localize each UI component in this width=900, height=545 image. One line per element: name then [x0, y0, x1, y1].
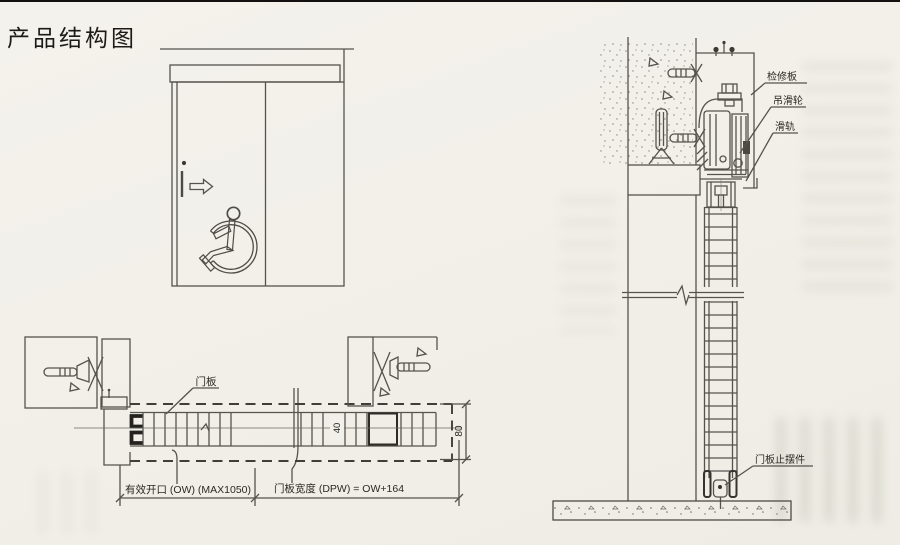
housing-pin	[722, 41, 725, 44]
door-section-view: 检修板 吊滑轮 滑轨 门板止摆件	[553, 37, 813, 520]
wall-anchor-bolt-right	[374, 348, 430, 396]
door-elevation-view	[160, 49, 354, 286]
housing-bolt	[713, 47, 718, 52]
opening-dimension-label: 有效开口 (OW) (MAX1050)	[125, 483, 251, 496]
section-callouts: 检修板 吊滑轮 滑轨 门板止摆件	[725, 70, 813, 485]
wall-post-right	[348, 337, 373, 406]
callout-leader-line	[725, 466, 813, 485]
aggregate-triangle	[70, 383, 79, 391]
callout-leader-line	[751, 83, 807, 95]
wheelchair-head	[227, 207, 239, 219]
lock-dot	[182, 161, 186, 165]
door-panel-callout: 门板	[166, 375, 219, 414]
wall-section-left	[25, 337, 97, 408]
hatch-marks	[697, 146, 708, 170]
centerline-break-mark	[201, 424, 209, 431]
section-break-line	[622, 286, 744, 304]
door-panel-label: 门板	[196, 375, 217, 388]
scanned-drawing-page: 产品结构图	[0, 0, 900, 545]
hanger-bolt-bracket	[707, 178, 735, 211]
hanger-roller-assembly	[697, 84, 750, 179]
pocket-stile-lines	[294, 388, 298, 448]
door-panel-section	[705, 207, 738, 478]
frame-channel	[104, 409, 130, 465]
panel-width-dimension-label: 门板宽度 (DPW) = OW+164	[274, 482, 404, 495]
rail-width-dim-text: 40	[332, 423, 343, 434]
hanger-roller-label: 吊滑轮	[773, 94, 803, 107]
access-panel-label: 检修板	[767, 70, 797, 83]
housing-bolt	[729, 47, 734, 52]
technical-drawing: 门板 40 有效开口 (OW) (MAX1050) 门板宽度 (DPW) = O…	[0, 0, 900, 545]
wheelchair-accessible-icon	[200, 207, 257, 273]
jamb-screw-head	[108, 389, 111, 392]
thickness-dimension: 80	[440, 400, 471, 464]
extension-hook	[292, 446, 298, 483]
width-dimensions: 有效开口 (OW) (MAX1050) 门板宽度 (DPW) = OW+164	[116, 440, 463, 506]
rail-width-dimension: 40	[330, 416, 344, 440]
lock-stile-section	[369, 414, 397, 445]
guide-pin-head	[718, 485, 722, 489]
door-plan-view: 门板 40 有效开口 (OW) (MAX1050) 门板宽度 (DPW) = O…	[25, 337, 471, 506]
concrete-wall-hatch	[599, 40, 693, 164]
floor-slab	[553, 501, 791, 520]
thickness-dim-text: 80	[454, 425, 465, 437]
door-panel-plan	[130, 413, 436, 447]
guide-channel	[704, 471, 711, 497]
extension-hook	[172, 450, 177, 484]
floor-guide-label: 门板止摆件	[755, 453, 805, 466]
lintel-beam-box	[628, 165, 700, 195]
extension-lines	[120, 440, 459, 506]
header-cover-box	[170, 65, 340, 82]
break-zigzag	[677, 286, 689, 304]
slide-direction-arrow-icon	[190, 180, 213, 194]
rail-label: 滑轨	[775, 120, 795, 133]
callout-leader-line	[166, 388, 219, 414]
wall-return-line	[373, 337, 437, 350]
wall-anchor-bolt-left	[44, 357, 103, 391]
track-profile-clips	[132, 416, 144, 443]
